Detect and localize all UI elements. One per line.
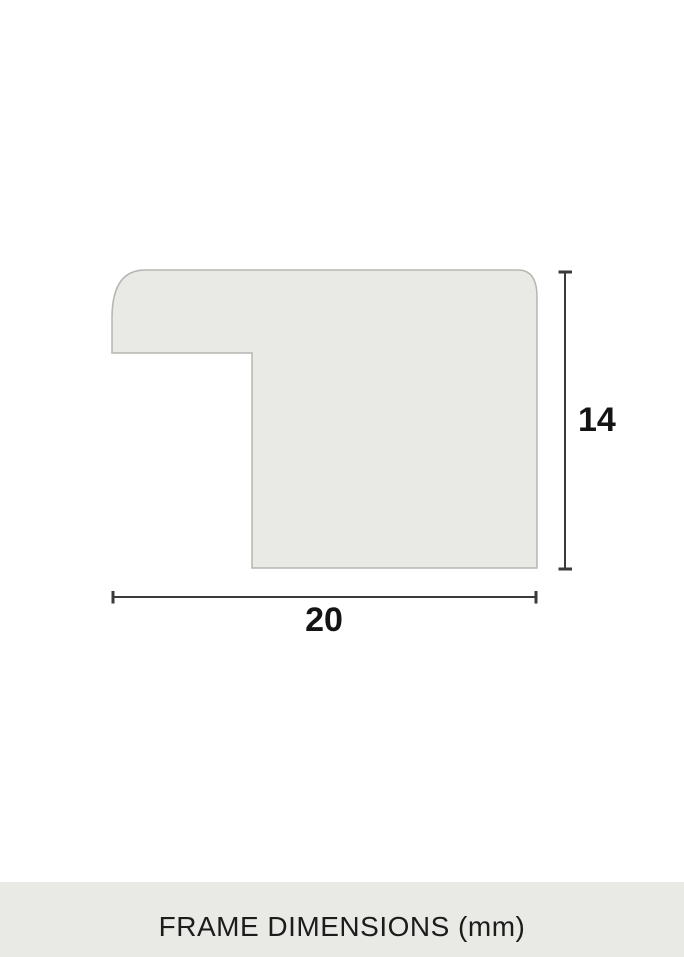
caption-band: FRAME DIMENSIONS (mm) [0,882,684,957]
width-dimension-label: 20 [284,603,364,637]
frame-dimensions-page: 14 20 FRAME DIMENSIONS (mm) [0,0,684,957]
height-dimension [559,272,573,569]
frame-profile-shape [112,270,537,568]
frame-profile-diagram [0,0,684,957]
caption-text: FRAME DIMENSIONS (mm) [159,911,526,943]
height-dimension-label: 14 [578,403,616,437]
